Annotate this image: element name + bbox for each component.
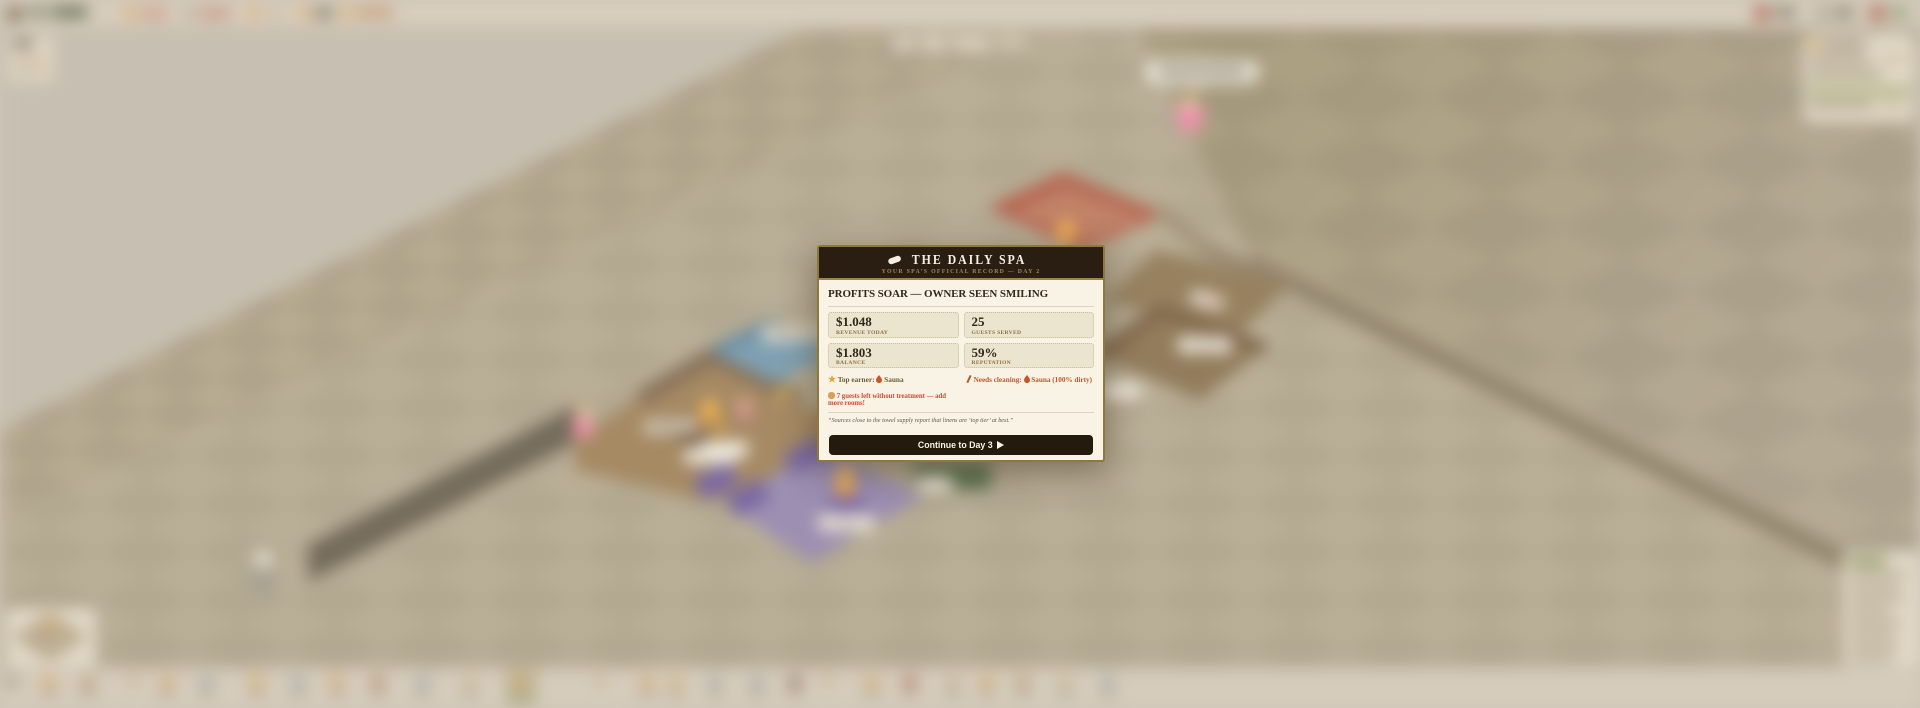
svg-text:Mud Bath: Mud Bath <box>1189 343 1219 350</box>
svg-text:Meditation: Meditation <box>830 521 862 528</box>
